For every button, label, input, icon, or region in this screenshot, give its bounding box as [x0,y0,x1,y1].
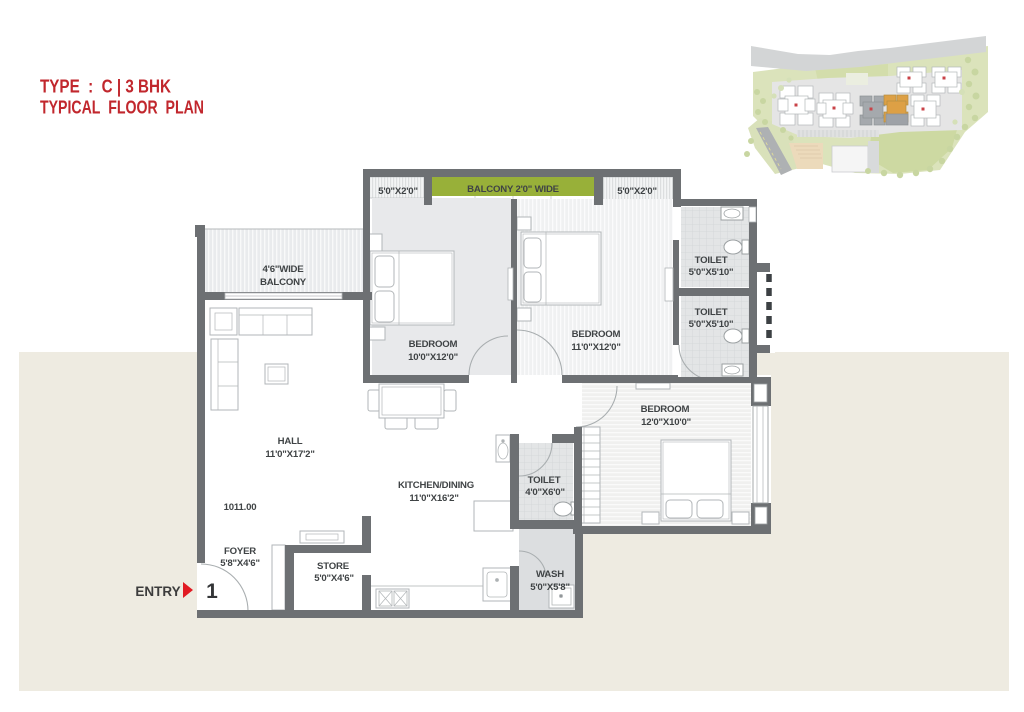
svg-text:STORE: STORE [317,561,350,572]
svg-text:TOILET: TOILET [528,475,561,486]
svg-text:KITCHEN/DINING: KITCHEN/DINING [398,480,474,491]
svg-text:1: 1 [206,580,218,603]
svg-text:BEDROOM: BEDROOM [409,339,458,350]
svg-text:5'0"X2'0": 5'0"X2'0" [617,186,657,197]
svg-text:5'0"X5'8": 5'0"X5'8" [530,582,570,593]
svg-text:5'0"X5'10": 5'0"X5'10" [689,319,734,330]
svg-text:BEDROOM: BEDROOM [641,404,690,415]
svg-text:1011.00: 1011.00 [224,502,257,513]
svg-text:11'0"X16'2": 11'0"X16'2" [409,493,458,504]
svg-text:11'0"X17'2": 11'0"X17'2" [265,449,314,460]
svg-text:TOILET: TOILET [695,255,728,266]
svg-text:4'6"WIDE: 4'6"WIDE [263,264,305,275]
svg-text:TYPE : C | 3 BHK: TYPE : C | 3 BHK [40,76,172,97]
svg-text:5'0"X4'6": 5'0"X4'6" [314,573,354,584]
svg-text:12'0"X10'0": 12'0"X10'0" [641,417,691,428]
svg-text:HALL: HALL [278,436,303,447]
svg-text:FOYER: FOYER [224,546,256,557]
svg-text:WASH: WASH [536,569,564,580]
svg-text:5'8"X4'6": 5'8"X4'6" [220,558,260,569]
svg-text:TYPICAL FLOOR PLAN: TYPICAL FLOOR PLAN [40,97,204,118]
svg-text:11'0"X12'0": 11'0"X12'0" [571,342,620,353]
svg-text:BALCONY: BALCONY [260,277,307,288]
svg-text:TOILET: TOILET [695,307,728,318]
svg-text:BEDROOM: BEDROOM [572,329,621,340]
svg-text:BALCONY 2'0" WIDE: BALCONY 2'0" WIDE [467,184,560,195]
svg-text:5'0"X2'0": 5'0"X2'0" [378,186,418,197]
svg-text:4'0"X6'0": 4'0"X6'0" [525,487,565,498]
svg-text:ENTRY: ENTRY [135,584,180,599]
svg-text:10'0"X12'0": 10'0"X12'0" [408,352,458,363]
svg-text:5'0"X5'10": 5'0"X5'10" [689,267,734,278]
